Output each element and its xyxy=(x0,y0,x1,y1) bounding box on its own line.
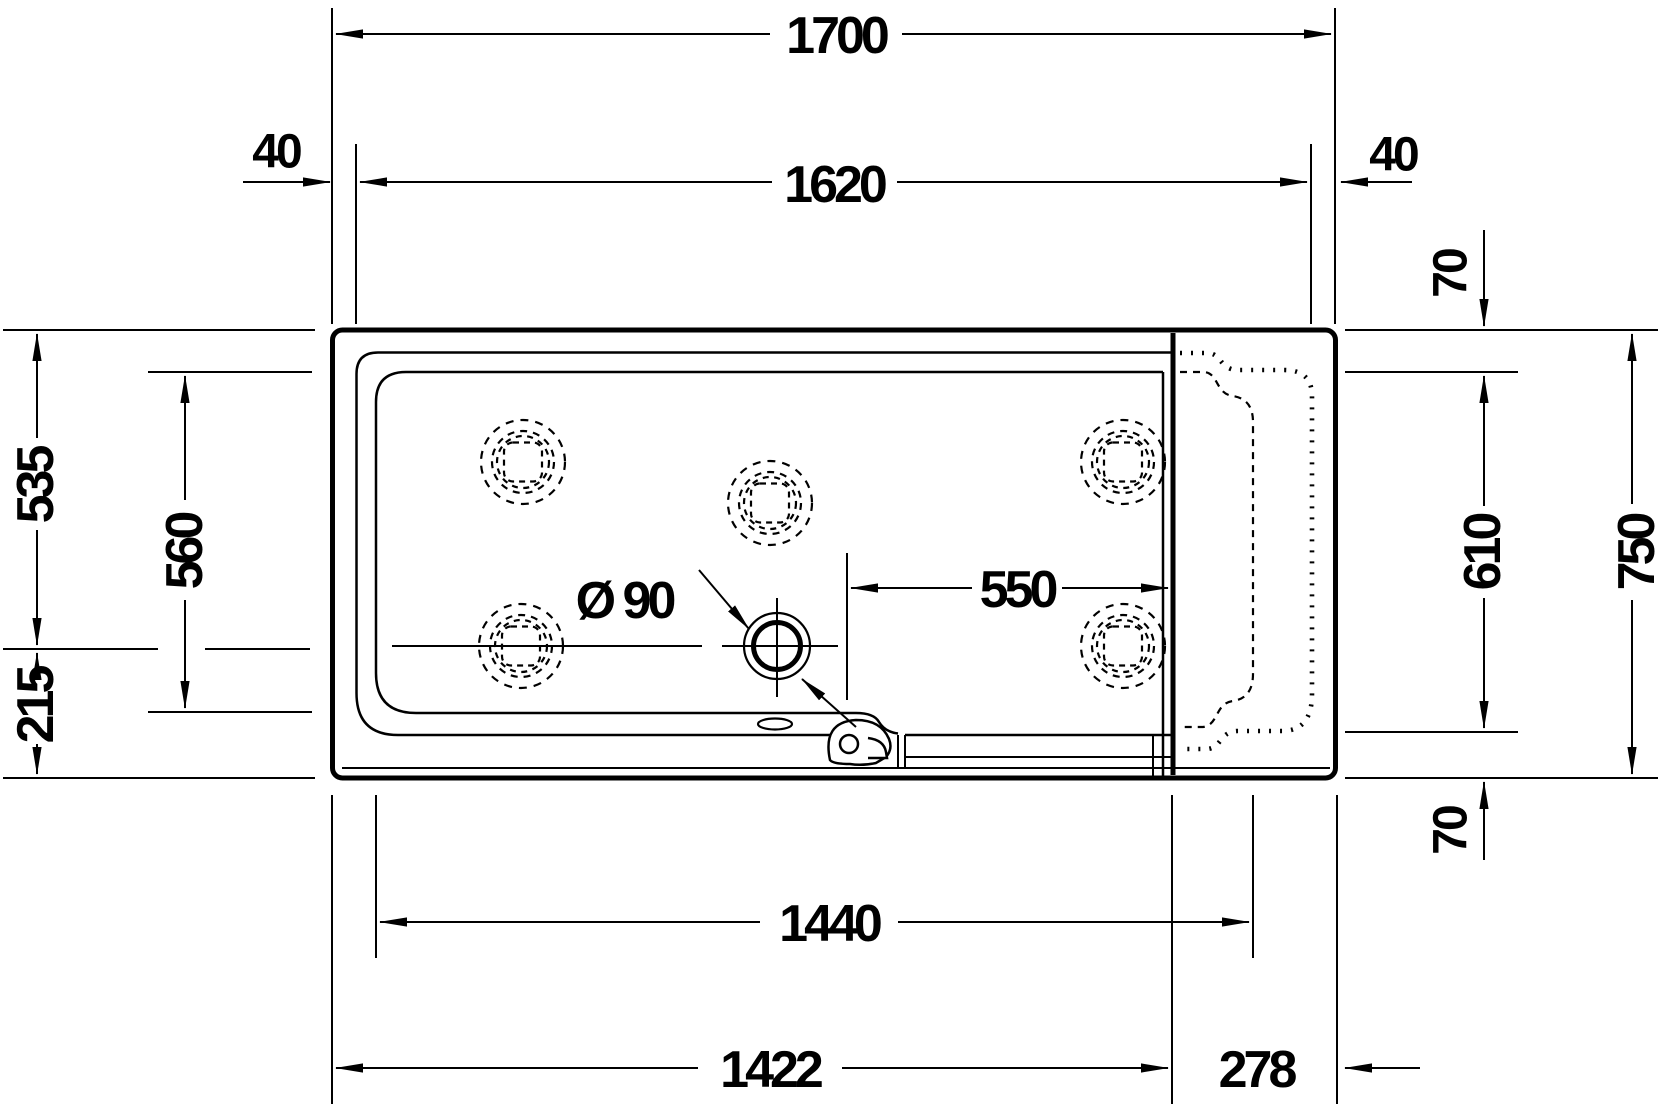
jet-top-right xyxy=(1081,420,1165,504)
jet-square xyxy=(1104,627,1142,666)
jet-circle-outer xyxy=(728,461,812,545)
handle-pivot xyxy=(840,735,858,753)
dim-label-1440: 1440 xyxy=(779,895,881,953)
overflow-slot xyxy=(758,719,792,730)
tub-outer-rim xyxy=(333,330,1336,778)
dim-label-610: 610 xyxy=(1454,514,1512,591)
drain-leader-top xyxy=(699,570,749,629)
jet-bottom-right xyxy=(1081,604,1165,688)
jet-circle-outer xyxy=(481,420,565,504)
dim-label-535: 535 xyxy=(7,446,65,524)
dim-label-drain-diameter: Ø 90 xyxy=(576,572,675,630)
dim-label-70-top: 70 xyxy=(1425,249,1478,298)
bathtub-plan-drawing: 1700 1620 40 40 535 560 215 70 610 750 7… xyxy=(0,0,1675,1108)
jet-square xyxy=(751,484,789,523)
jet-circle-outer xyxy=(1081,604,1165,688)
jet-positions xyxy=(479,420,1165,688)
technical-drawing-page: 1700 1620 40 40 535 560 215 70 610 750 7… xyxy=(0,0,1675,1108)
jet-circle-mid xyxy=(492,431,554,493)
dim-label-278: 278 xyxy=(1219,1041,1297,1099)
dim-label-1422: 1422 xyxy=(720,1041,822,1099)
jet-square xyxy=(1104,443,1142,482)
jet-circle-mid xyxy=(1092,431,1154,493)
jet-top-middle xyxy=(728,461,812,545)
jet-top-left xyxy=(481,420,565,504)
tub-geometry xyxy=(333,330,1336,778)
jet-circle-mid xyxy=(1092,615,1154,677)
seat-dashed-outline-inner xyxy=(1180,372,1253,727)
jet-square xyxy=(504,443,542,482)
dim-label-750: 750 xyxy=(1608,514,1666,591)
tub-rim-inner-line xyxy=(357,353,1172,736)
dim-label-40-right: 40 xyxy=(1369,129,1418,182)
dim-label-70-bottom: 70 xyxy=(1425,806,1478,855)
jet-circle-mid xyxy=(739,472,801,534)
dim-label-1620: 1620 xyxy=(784,156,886,214)
dim-label-1700: 1700 xyxy=(786,7,888,65)
dim-label-40-left: 40 xyxy=(252,126,301,179)
dim-label-550: 550 xyxy=(980,561,1057,619)
dimension-labels: 1700 1620 40 40 535 560 215 70 610 750 7… xyxy=(7,7,1666,1099)
seat-dashed-outline-outer xyxy=(1180,353,1312,749)
dim-label-215: 215 xyxy=(7,666,65,744)
door-rail-band xyxy=(898,735,1171,776)
jet-circle-outer xyxy=(1081,420,1165,504)
dim-label-560: 560 xyxy=(156,513,214,590)
door-handle xyxy=(828,720,890,765)
